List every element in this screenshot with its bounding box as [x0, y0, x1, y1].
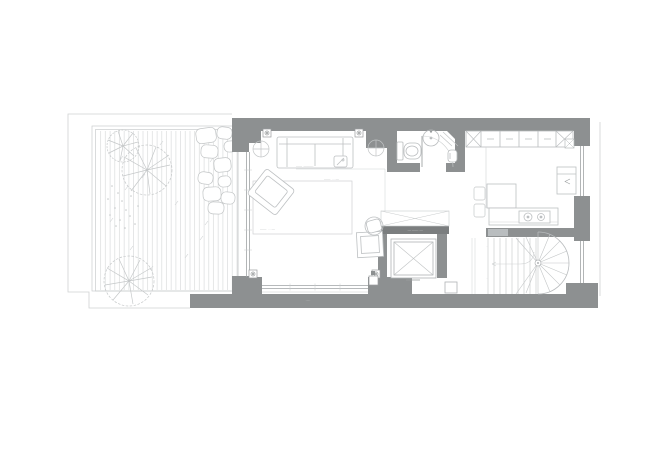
side-table [253, 141, 269, 157]
skylight-void [381, 211, 449, 226]
ceiling-fixture-icon [249, 270, 257, 278]
floor-plan-page: —— ·———· ——· ····— ——· ····— ·— ——··— ·—… [0, 0, 660, 467]
dining-table [487, 184, 516, 208]
wall-fixture [448, 150, 457, 162]
dining-chair [474, 204, 485, 217]
spiral-staircase [472, 232, 569, 294]
window-east-lower [581, 241, 584, 283]
sofa [277, 137, 353, 168]
stair-annotation: ·· [486, 277, 488, 280]
stair-annotation: ·· [486, 245, 488, 248]
ceiling-fixture-icon [355, 129, 363, 137]
south-window-annotation: ·—· [306, 298, 311, 302]
stair-pole-dot [537, 262, 539, 264]
ceiling-fixture-icon [263, 129, 271, 137]
floor-plan-drawing: —— ·———· ——· ····— ——· ····— ·— ——··— ·—… [0, 0, 660, 467]
window-south [262, 284, 368, 293]
elevator-annotation: ·— ——··— [407, 229, 423, 233]
rug-annotation: ——· ····— [260, 227, 275, 231]
label-leader-line [296, 169, 385, 211]
kitchen-corner-unit [565, 139, 574, 148]
dining-chair [474, 187, 485, 200]
stair-walking-line [492, 252, 534, 266]
elevator [391, 239, 436, 280]
stair-balustrade [472, 238, 475, 294]
stair-door-threshold [488, 229, 508, 236]
sofa-annotation: —— ·———· [296, 164, 314, 168]
side-table [368, 140, 384, 156]
cooktop-counter [489, 208, 558, 225]
floor-box [445, 282, 457, 293]
toilet [397, 142, 421, 160]
desk [356, 231, 383, 257]
basin [423, 130, 439, 146]
kitchen-sink-counter [557, 167, 576, 194]
glass-wall-west [244, 152, 252, 277]
kitchen-wall-cabinets [466, 131, 573, 147]
rug-annotation: ——· ····— [324, 177, 339, 181]
desk-chair [365, 217, 383, 235]
armchair [247, 168, 295, 215]
window-east-upper [581, 146, 584, 196]
